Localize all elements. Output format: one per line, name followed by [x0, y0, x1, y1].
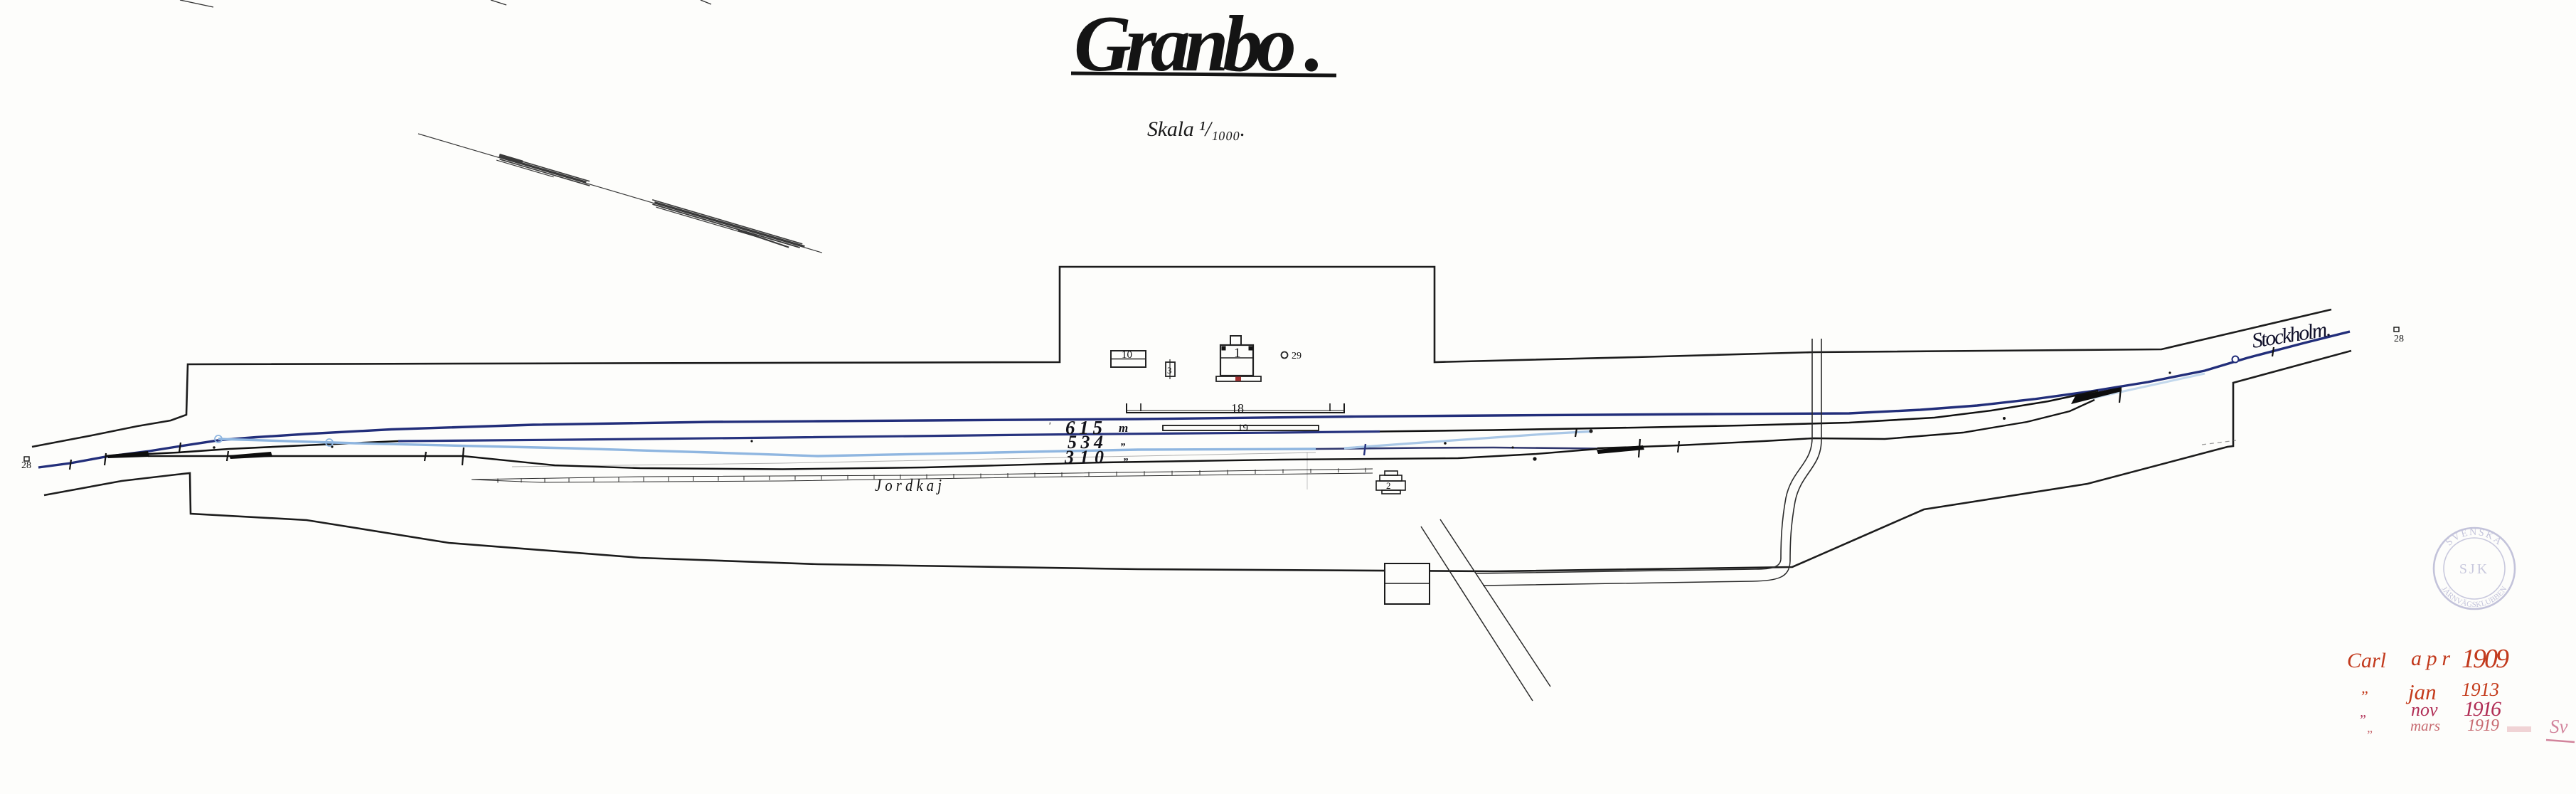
svg-text:19: 19 — [1238, 423, 1248, 434]
svg-text:Carl: Carl — [2347, 649, 2386, 672]
svg-text:Sv: Sv — [2550, 716, 2568, 737]
svg-text:m: m — [1119, 421, 1128, 435]
svg-text:„: „ — [2367, 721, 2374, 735]
svg-text:apr: apr — [2411, 647, 2450, 670]
svg-text:28: 28 — [21, 460, 31, 471]
svg-text:1919: 1919 — [2467, 716, 2499, 735]
svg-text:Skala ¹/₁₀₀₀.: Skala ¹/₁₀₀₀. — [1147, 117, 1245, 141]
svg-text:SJK: SJK — [2459, 561, 2489, 577]
svg-text:29: 29 — [1292, 351, 1302, 361]
svg-text:310: 310 — [1064, 447, 1104, 467]
svg-text:mars: mars — [2410, 717, 2440, 734]
svg-text:„: „ — [2360, 704, 2368, 720]
svg-text:„: „ — [1121, 436, 1127, 448]
svg-text:„: „ — [2361, 679, 2370, 697]
svg-text:1: 1 — [1234, 346, 1241, 361]
svg-text:18: 18 — [1231, 401, 1244, 415]
svg-text:3: 3 — [1167, 365, 1172, 376]
svg-text:„: „ — [1124, 451, 1129, 462]
svg-text:J o r d k a j: J o r d k a j — [875, 477, 942, 495]
svg-text:10: 10 — [1122, 349, 1132, 361]
svg-text:1909: 1909 — [2461, 644, 2509, 674]
svg-text:2: 2 — [1386, 480, 1391, 491]
svg-text:28: 28 — [2394, 334, 2404, 344]
